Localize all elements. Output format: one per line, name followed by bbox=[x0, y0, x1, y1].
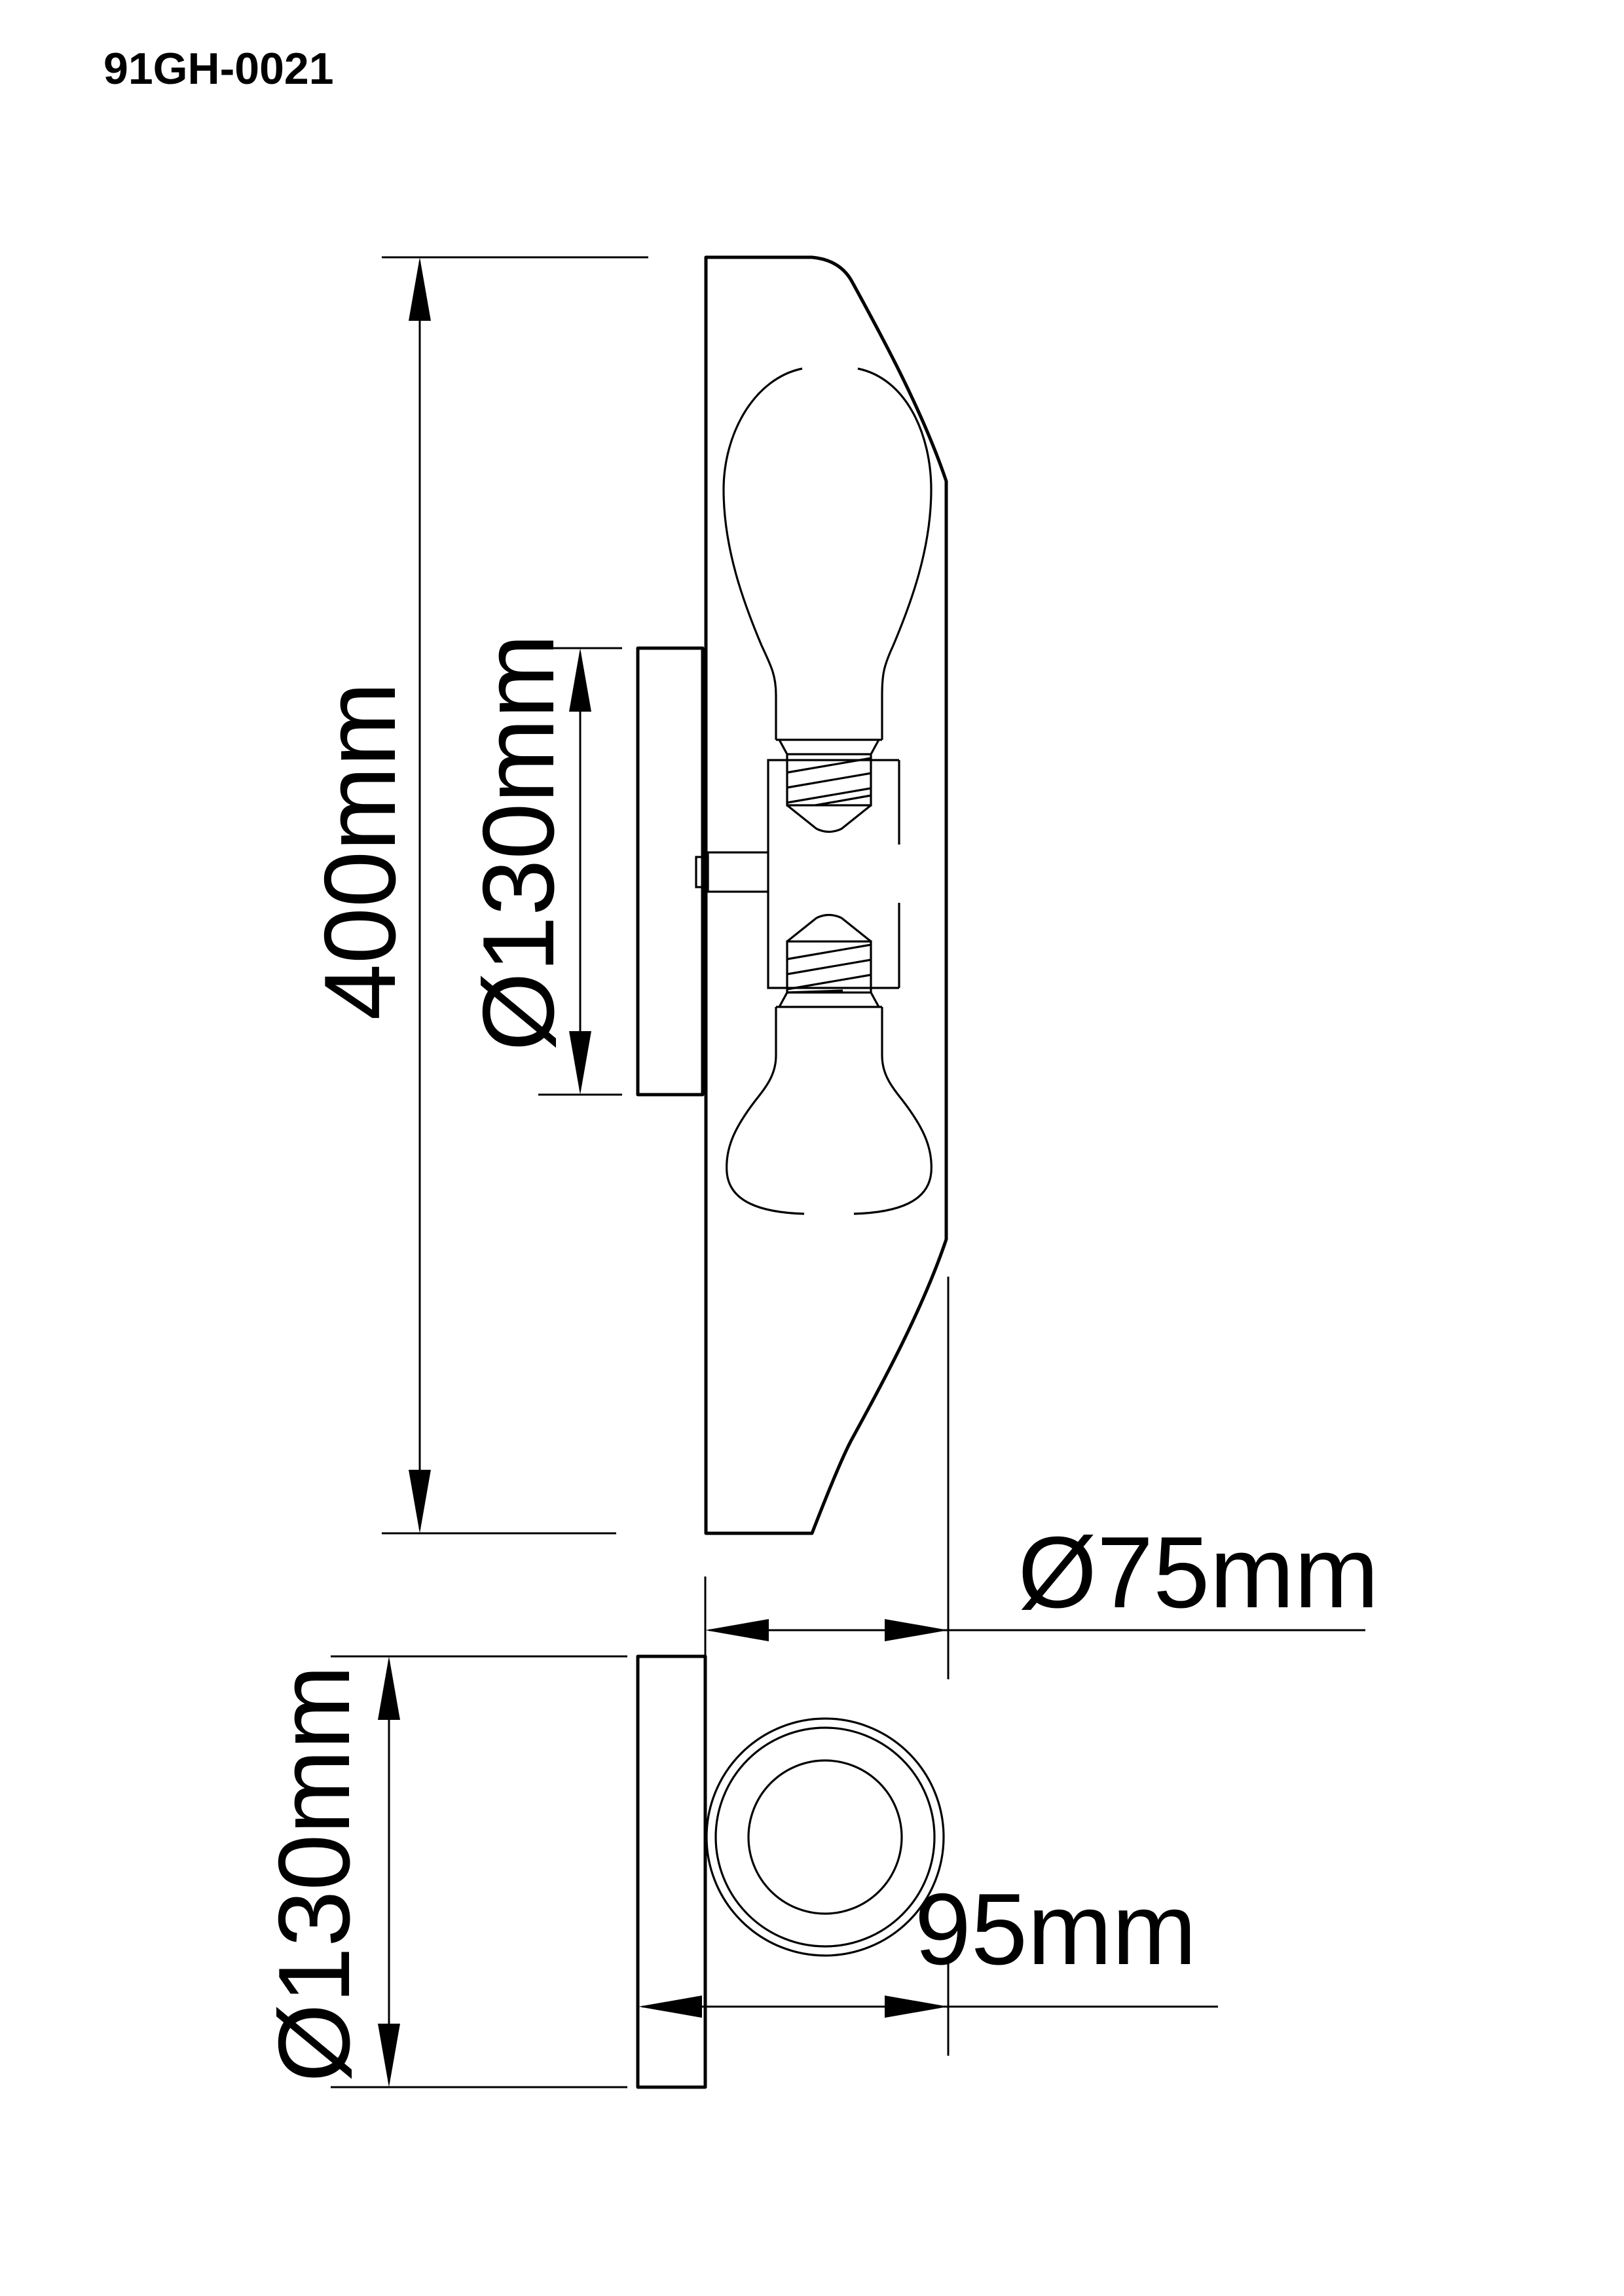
arrowhead-left bbox=[705, 1619, 769, 1641]
bulb-bottom-left-outline bbox=[727, 1007, 804, 1214]
switch-pin bbox=[708, 852, 768, 892]
height-dimension-label: 400mm bbox=[303, 682, 416, 1021]
extension-lines-plate-bottom bbox=[331, 1656, 627, 2087]
dimension-plate-diameter-bottom: Ø130mm bbox=[257, 1656, 627, 2087]
arrowhead-up bbox=[378, 1656, 400, 1720]
socket-bottom-collar bbox=[776, 993, 882, 1007]
bulb-top-right-outline bbox=[858, 369, 931, 740]
drawing-sheet: 91GH-0021 bbox=[0, 0, 1624, 2296]
socket-bottom-tip bbox=[787, 915, 871, 942]
shade-outline-side bbox=[706, 257, 946, 1533]
part-number-label: 91GH-0021 bbox=[103, 44, 334, 94]
dimension-plate-diameter-side: Ø130mm bbox=[462, 634, 622, 1095]
dimension-shade-depth: Ø75mm bbox=[705, 1277, 1379, 1679]
shade-inner-ring bbox=[748, 1760, 902, 1914]
socket-top-threads bbox=[787, 758, 871, 805]
arrowhead-right bbox=[885, 1995, 948, 2018]
extension-lines-shade-depth bbox=[705, 1277, 948, 1679]
mounting-plate-bottom bbox=[638, 1656, 705, 2087]
bottom-view bbox=[638, 1656, 944, 2087]
side-view bbox=[638, 257, 946, 1533]
shade-depth-label: Ø75mm bbox=[1018, 1516, 1378, 1629]
bulb-top bbox=[724, 369, 931, 740]
plate-diameter-bottom-label: Ø130mm bbox=[257, 1665, 371, 2082]
arrowhead-left bbox=[638, 1995, 702, 2018]
socket-top bbox=[776, 740, 882, 832]
bulb-bottom bbox=[727, 1007, 932, 1214]
bulb-bottom-right-outline bbox=[854, 1007, 931, 1214]
socket-bottom-threads bbox=[787, 945, 871, 993]
plate-diameter-side-label: Ø130mm bbox=[462, 634, 575, 1051]
overall-depth-label: 95mm bbox=[915, 1872, 1197, 1986]
arrowhead-down bbox=[378, 2024, 400, 2087]
bulb-top-left-outline bbox=[724, 369, 802, 740]
technical-drawing: 91GH-0021 bbox=[0, 0, 1624, 2296]
mounting-plate-side bbox=[638, 648, 703, 1095]
socket-bottom bbox=[776, 915, 882, 1008]
arrowhead-down bbox=[409, 1470, 431, 1533]
shade-outer-ring bbox=[707, 1719, 944, 1956]
socket-top-collar bbox=[776, 740, 882, 754]
arrowhead-right bbox=[885, 1619, 948, 1641]
socket-top-tip bbox=[787, 805, 871, 832]
arrowhead-up bbox=[409, 257, 431, 321]
